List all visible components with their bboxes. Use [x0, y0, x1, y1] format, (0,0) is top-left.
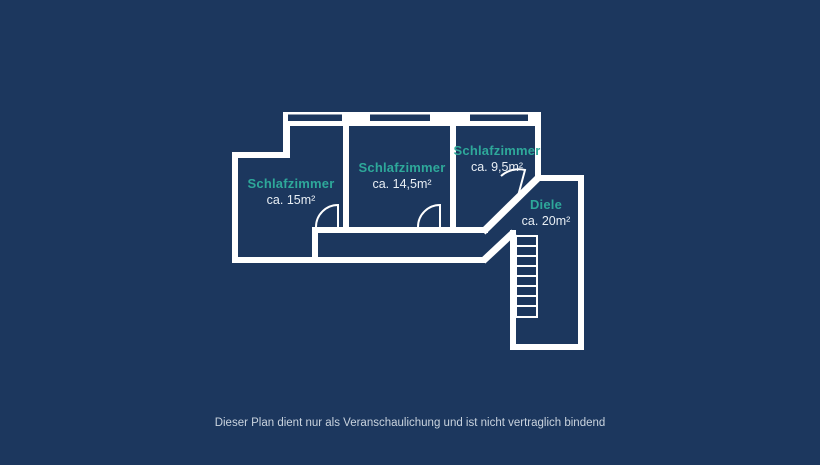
disclaimer-text: Dieser Plan dient nur als Veranschaulich…	[0, 416, 820, 430]
diele-bottom-wall	[510, 344, 584, 350]
walls	[232, 112, 584, 350]
staircase	[516, 236, 537, 317]
room3-right-wall	[535, 112, 541, 181]
diagonal-wall-upper	[483, 177, 539, 232]
door-arc-room1	[316, 205, 338, 228]
corridor-end-wall	[312, 227, 318, 263]
floorplan-canvas: Schlafzimmer ca. 15m² Schlafzimmer ca. 1…	[0, 0, 820, 465]
floorplan-drawing	[0, 0, 820, 465]
diele-top-wall	[535, 175, 584, 181]
divider-wall-room1-room2	[343, 124, 349, 233]
diele-right-wall	[578, 175, 584, 350]
divider-wall-room2-room3	[450, 124, 456, 233]
window-icon-room2	[370, 115, 430, 122]
left-wall	[232, 152, 238, 263]
door-arc-room2	[418, 205, 440, 228]
room1-step-wall	[232, 152, 290, 158]
diagonal-wall-lower	[483, 232, 514, 261]
windows	[288, 115, 528, 122]
bottom-wall	[232, 257, 485, 263]
window-icon-room1	[288, 115, 342, 122]
window-icon-room3	[470, 115, 528, 122]
